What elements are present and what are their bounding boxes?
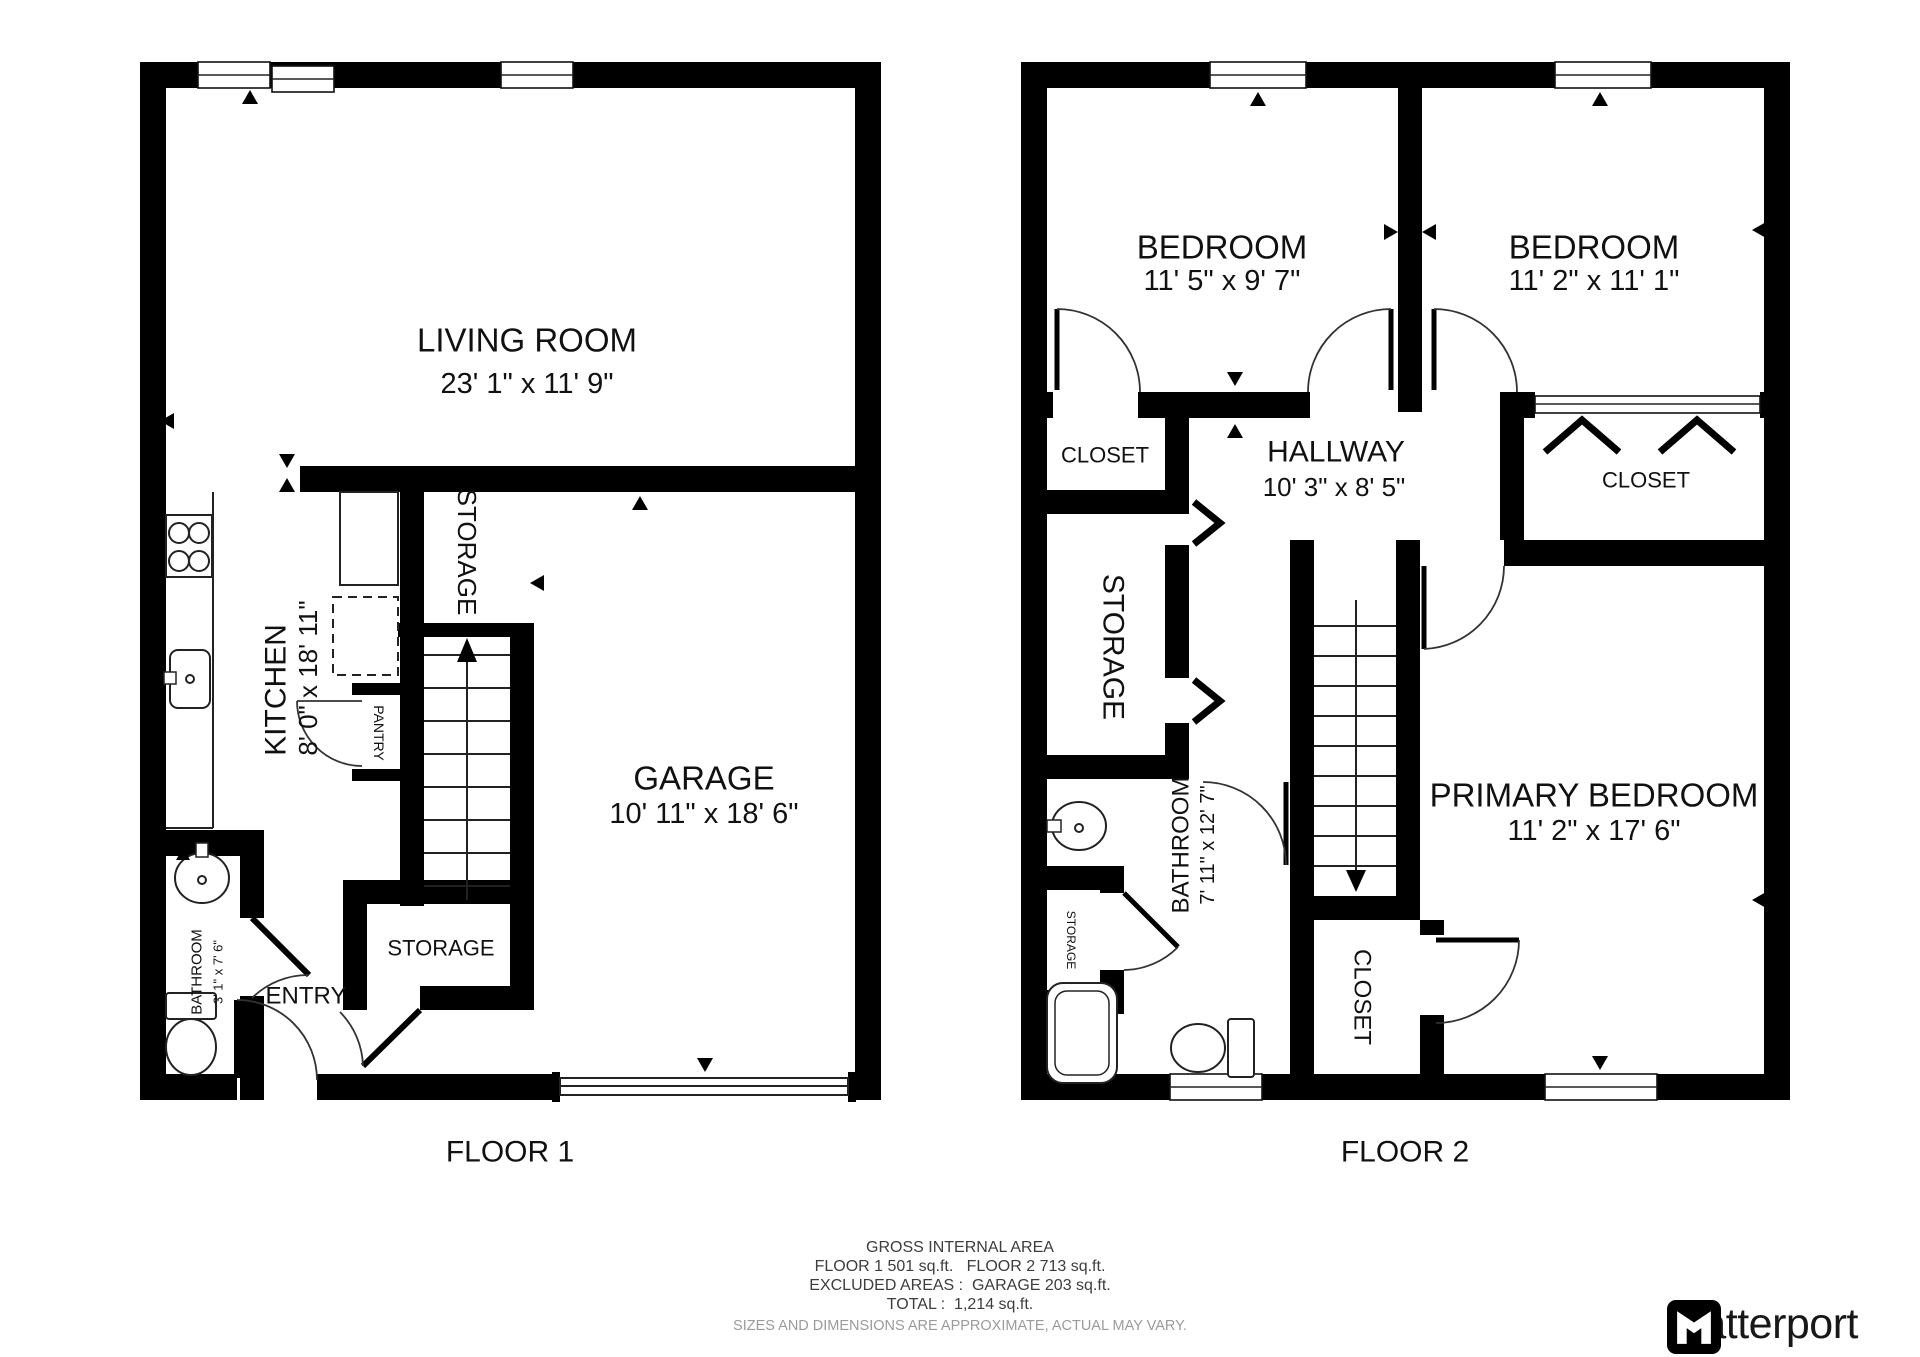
refrigerator-icon <box>340 492 398 585</box>
bathroom1-label: BATHROOM <box>189 929 206 1015</box>
hallway-dims: 10' 3" x 8' 5" <box>1263 472 1406 502</box>
bedroom-left-label: BEDROOM <box>1137 229 1308 266</box>
floor1-markers <box>160 90 713 1072</box>
floor1-walls <box>140 62 881 1100</box>
closet-bottom-label: CLOSET <box>1349 949 1376 1045</box>
floor1-labels: LIVING ROOM 23' 1" x 11' 9" GARAGE 10' 1… <box>189 322 799 1169</box>
kitchen-sink-icon <box>164 650 210 708</box>
storage-room-label: STORAGE <box>387 936 494 961</box>
footer-line-excluded: EXCLUDED AREAS : GARAGE 203 sq.ft. <box>0 1276 1920 1295</box>
bedroom-left-dims: 11' 5" x 9' 7" <box>1144 265 1301 297</box>
living-room-dims: 23' 1" x 11' 9" <box>440 368 613 400</box>
toilet2-icon <box>1171 1019 1254 1077</box>
storage-small-label: STORAGE <box>1064 911 1078 969</box>
living-room-label: LIVING ROOM <box>417 322 637 359</box>
garage-label: GARAGE <box>633 760 774 797</box>
bathroom2-sink-icon <box>1047 802 1106 850</box>
closet-left-door-arc <box>1057 309 1140 392</box>
footer-line-floors: FLOOR 1 501 sq.ft. FLOOR 2 713 sq.ft. <box>0 1257 1920 1276</box>
appliance-dashed-icon <box>333 597 398 675</box>
gross-area-footer: GROSS INTERNAL AREA FLOOR 1 501 sq.ft. F… <box>0 1238 1920 1336</box>
footer-disclaimer: SIZES AND DIMENSIONS ARE APPROXIMATE, AC… <box>0 1317 1920 1336</box>
storage-area-label: STORAGE <box>452 489 482 616</box>
pantry-label: PANTRY <box>371 705 387 761</box>
kitchen-label: KITCHEN <box>260 624 293 756</box>
bathtub-icon <box>1047 983 1117 1083</box>
bathroom2-label: BATHROOM <box>1168 777 1195 914</box>
stairs-down-icon <box>1314 600 1396 892</box>
primary-bedroom-dims: 11' 2" x 17' 6" <box>1507 815 1680 847</box>
storage-door-arc <box>340 1010 420 1066</box>
bedroom-right-door-arc <box>1434 309 1517 392</box>
primary-bedroom-label: PRIMARY BEDROOM <box>1430 777 1759 814</box>
bedroom-left-door-arc <box>1308 309 1391 392</box>
kitchen-dims: 8' 0" x 18' 11" <box>293 600 323 755</box>
closet-bottom-door-arc <box>1436 940 1519 1023</box>
window-icon <box>1210 62 1306 88</box>
storage-left-label: STORAGE <box>1097 574 1130 720</box>
stove-icon <box>166 515 212 577</box>
window-icon <box>1545 1074 1657 1100</box>
window-icon <box>1555 62 1651 88</box>
floorplan-canvas: LIVING ROOM 23' 1" x 11' 9" GARAGE 10' 1… <box>0 0 1920 1357</box>
bathroom1-dims: 3' 1" x 7' 6" <box>211 940 226 1004</box>
stairs-up-icon <box>424 638 510 900</box>
primary-door-arc <box>1424 566 1504 649</box>
floor2-walls <box>1021 62 1790 1100</box>
floor2-title: FLOOR 2 <box>1341 1136 1469 1169</box>
floor1-title: FLOOR 1 <box>446 1136 574 1169</box>
bathroom2-dims: 7' 11" x 12' 7" <box>1197 785 1219 904</box>
matterport-brand: Matterport <box>1667 1300 1858 1349</box>
footer-line-total: TOTAL : 1,214 sq.ft. <box>0 1295 1920 1314</box>
window-icon <box>501 62 573 88</box>
garage-dims: 10' 11" x 18' 6" <box>609 798 798 830</box>
bifold-door-icon <box>1194 502 1220 722</box>
closet-rail-icon <box>1545 420 1734 452</box>
bedroom-right-label: BEDROOM <box>1509 229 1680 266</box>
closet-right-label: CLOSET <box>1602 468 1690 493</box>
sliding-door-icon <box>1535 396 1760 413</box>
closet-left-label: CLOSET <box>1061 443 1149 468</box>
matterport-logo-icon <box>1667 1300 1721 1354</box>
bedroom-right-dims: 11' 2" x 11' 1" <box>1509 265 1680 297</box>
garage-door-icon <box>552 1072 856 1102</box>
window-icon <box>272 66 334 92</box>
entry-label: ENTRY <box>266 983 347 1010</box>
window-icon <box>198 62 270 88</box>
hallway-label: HALLWAY <box>1267 436 1405 469</box>
floor1-plan: LIVING ROOM 23' 1" x 11' 9" GARAGE 10' 1… <box>140 62 881 1169</box>
floorplan-page: LIVING ROOM 23' 1" x 11' 9" GARAGE 10' 1… <box>0 0 1920 1357</box>
floor2-plan: BEDROOM 11' 5" x 9' 7" BEDROOM 11' 2" x … <box>1021 62 1790 1169</box>
footer-line-gross: GROSS INTERNAL AREA <box>0 1238 1920 1257</box>
